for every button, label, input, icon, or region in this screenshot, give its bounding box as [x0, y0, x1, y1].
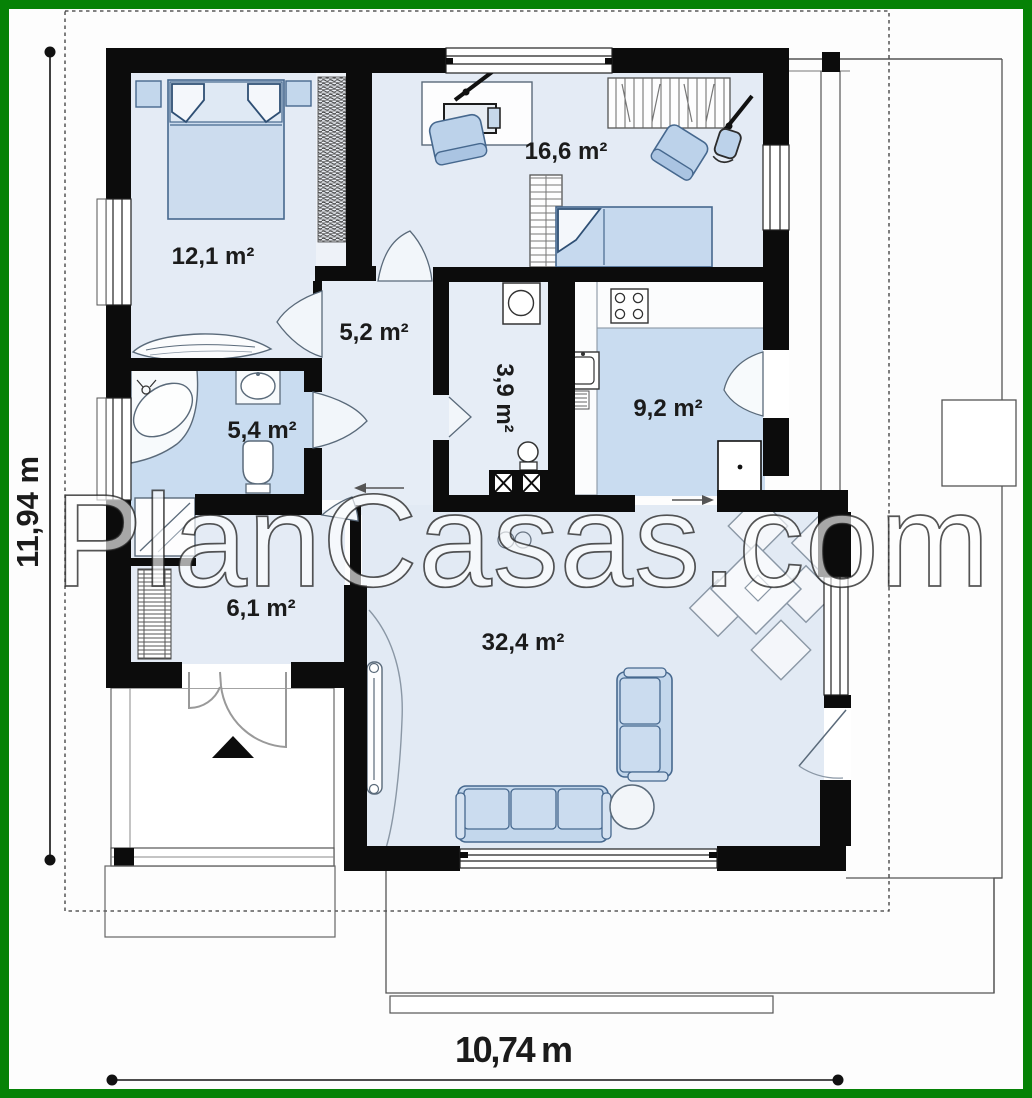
- svg-text:3,9 m²: 3,9 m²: [491, 363, 518, 432]
- svg-text:10,74 m: 10,74 m: [455, 1029, 573, 1070]
- svg-text:PlanCasas.com: PlanCasas.com: [55, 467, 990, 614]
- svg-text:16,6 m²: 16,6 m²: [525, 138, 608, 165]
- svg-text:12,1 m²: 12,1 m²: [172, 243, 255, 270]
- svg-text:5,4 m²: 5,4 m²: [227, 417, 296, 444]
- svg-text:5,2 m²: 5,2 m²: [339, 319, 408, 346]
- svg-text:32,4 m²: 32,4 m²: [482, 629, 565, 656]
- svg-text:9,2 m²: 9,2 m²: [633, 395, 702, 422]
- svg-text:11,94 m: 11,94 m: [10, 456, 45, 568]
